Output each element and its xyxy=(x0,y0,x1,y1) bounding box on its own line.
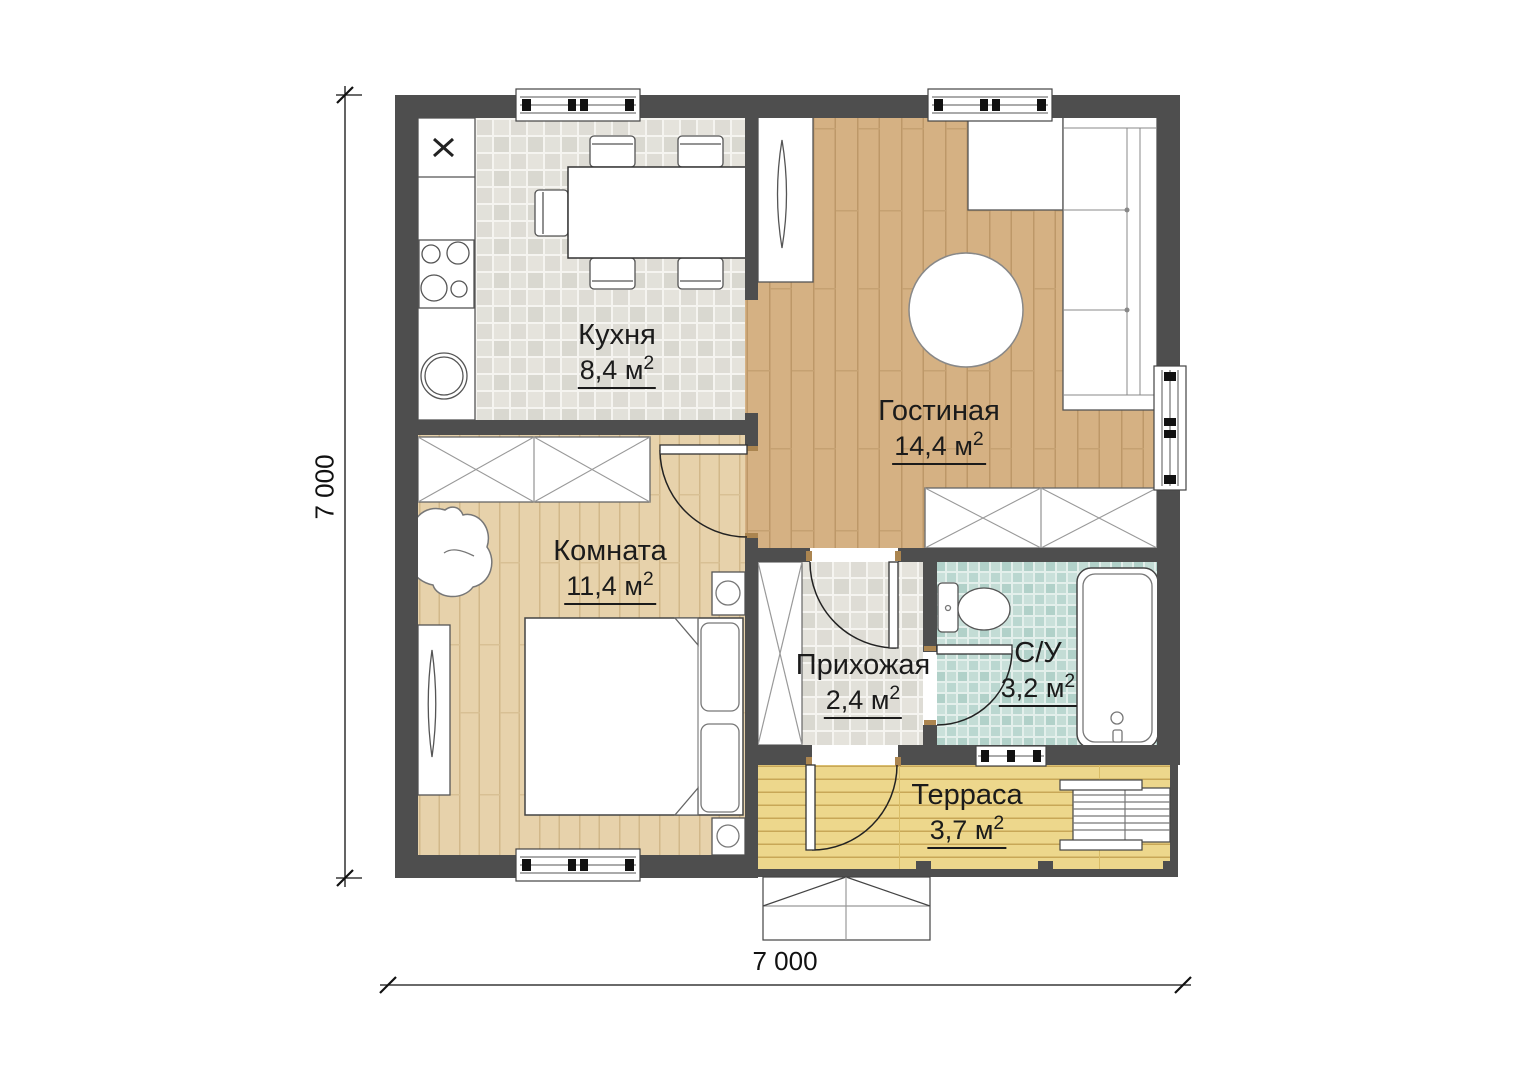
room-name: Терраса xyxy=(911,780,1022,810)
wall-top xyxy=(395,95,1180,118)
living-window-top xyxy=(928,89,1052,121)
chair xyxy=(678,258,723,289)
kitchen-window xyxy=(516,89,640,121)
chair xyxy=(535,190,568,236)
floor-plan-drawing xyxy=(0,0,1527,1079)
wall-bath-left-b xyxy=(923,725,937,745)
dimension-height-label: 7 000 xyxy=(310,454,341,519)
room-label-living: Гостиная 14,4 м2 xyxy=(878,396,1000,465)
room-label-hallway: Прихожая 2,4 м2 xyxy=(796,650,930,719)
wall-kitchen-living-a xyxy=(745,118,758,300)
pillow xyxy=(701,623,739,711)
room-area: 3,7 м2 xyxy=(928,813,1006,848)
room-label-kitchen: Кухня 8,4 м2 xyxy=(578,320,656,389)
chair xyxy=(678,136,723,167)
wall-hall-top-right xyxy=(898,548,1157,562)
wall-hall-top-left xyxy=(758,548,810,562)
burner xyxy=(421,275,447,301)
dimension-width-label: 7 000 xyxy=(752,946,817,977)
room-area: 3,2 м2 xyxy=(999,671,1077,706)
wall-bedroom-right xyxy=(745,538,758,878)
bathroom-window xyxy=(976,746,1046,766)
wall-bath-left-a xyxy=(923,562,937,652)
kitchen-sink-inner xyxy=(425,357,463,395)
entrance-porch xyxy=(763,877,930,940)
terrace-post xyxy=(1038,861,1053,876)
floor-plan: Кухня 8,4 м2 Гостиная 14,4 м2 Комната 11… xyxy=(0,0,1527,1079)
room-area: 14,4 м2 xyxy=(892,429,985,464)
room-name: Гостиная xyxy=(878,396,1000,426)
bathtub xyxy=(1077,568,1158,748)
terrace-post xyxy=(916,861,931,876)
terrace-post xyxy=(1163,861,1178,876)
room-label-bathroom: С/У 3,2 м2 xyxy=(999,638,1077,707)
burner xyxy=(451,281,467,297)
burner xyxy=(447,242,469,264)
round-rug xyxy=(909,253,1023,367)
terrace-steps xyxy=(1060,780,1170,850)
room-label-terrace: Терраса 3,7 м2 xyxy=(911,780,1022,849)
room-name: С/У xyxy=(999,638,1077,668)
lamp-icon xyxy=(716,581,740,605)
wall-kitchen-bedroom xyxy=(418,420,758,435)
room-area: 8,4 м2 xyxy=(578,353,656,388)
terrace-rail-right xyxy=(1170,765,1178,877)
wall-hall-bottom xyxy=(758,745,812,765)
dining-table xyxy=(568,167,747,258)
room-label-bedroom: Комната 11,4 м2 xyxy=(553,536,667,605)
bedroom-window xyxy=(516,849,640,881)
room-name: Прихожая xyxy=(796,650,930,680)
room-name: Кухня xyxy=(578,320,656,350)
faucet-icon xyxy=(1113,730,1122,742)
room-area: 11,4 м2 xyxy=(564,569,655,604)
living-wardrobe xyxy=(925,488,1157,548)
chair xyxy=(590,258,635,289)
bedroom-wardrobe xyxy=(418,437,650,502)
chair xyxy=(590,136,635,167)
drain xyxy=(1111,712,1123,724)
wall-left xyxy=(395,95,418,878)
living-window-right xyxy=(1154,366,1186,490)
burner xyxy=(422,245,440,263)
bed xyxy=(525,618,743,815)
lamp-icon xyxy=(717,825,739,847)
room-name: Комната xyxy=(553,536,667,566)
terrace-rail-bottom xyxy=(758,869,1178,877)
pillow xyxy=(701,724,739,812)
dimension-bottom xyxy=(380,977,1191,993)
room-area: 2,4 м2 xyxy=(824,683,902,718)
